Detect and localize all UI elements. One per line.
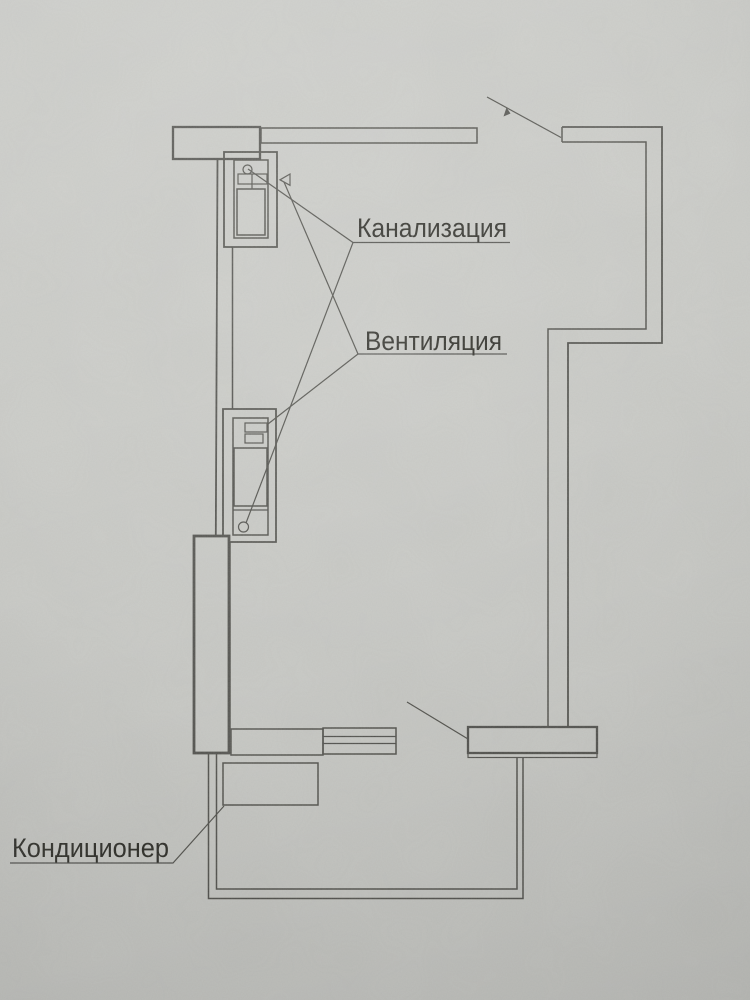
photographed-floor-plan-sheet: Канализация Вентиляция Кондиционер — [0, 0, 750, 1000]
floor-plan-drawing: Канализация Вентиляция Кондиционер — [0, 0, 750, 1000]
paper-grain-texture — [0, 0, 750, 1000]
